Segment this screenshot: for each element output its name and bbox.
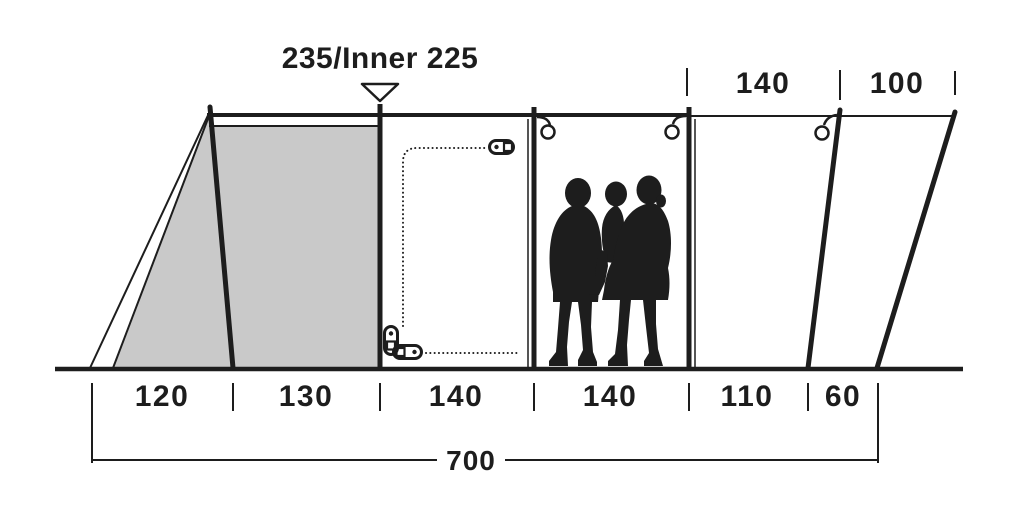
- bottom-dim-140b: 140: [583, 380, 638, 413]
- top-dim-100: 100: [870, 67, 925, 100]
- bottom-dim-60: 60: [825, 380, 861, 413]
- total-length-label: 700: [446, 445, 496, 476]
- bottom-dim-120: 120: [135, 380, 190, 413]
- bottom-dim-140a: 140: [429, 380, 484, 413]
- tent-dimensions-diagram: 235/Inner 225 140 100 120 130 140 140 11…: [0, 0, 1024, 518]
- height-label: 235/Inner 225: [282, 42, 479, 75]
- diagram-canvas: 235/Inner 225 140 100 120 130 140 140 11…: [0, 0, 1024, 518]
- bottom-dim-130: 130: [279, 380, 334, 413]
- top-dim-140: 140: [736, 67, 791, 100]
- bottom-dim-110: 110: [721, 380, 774, 413]
